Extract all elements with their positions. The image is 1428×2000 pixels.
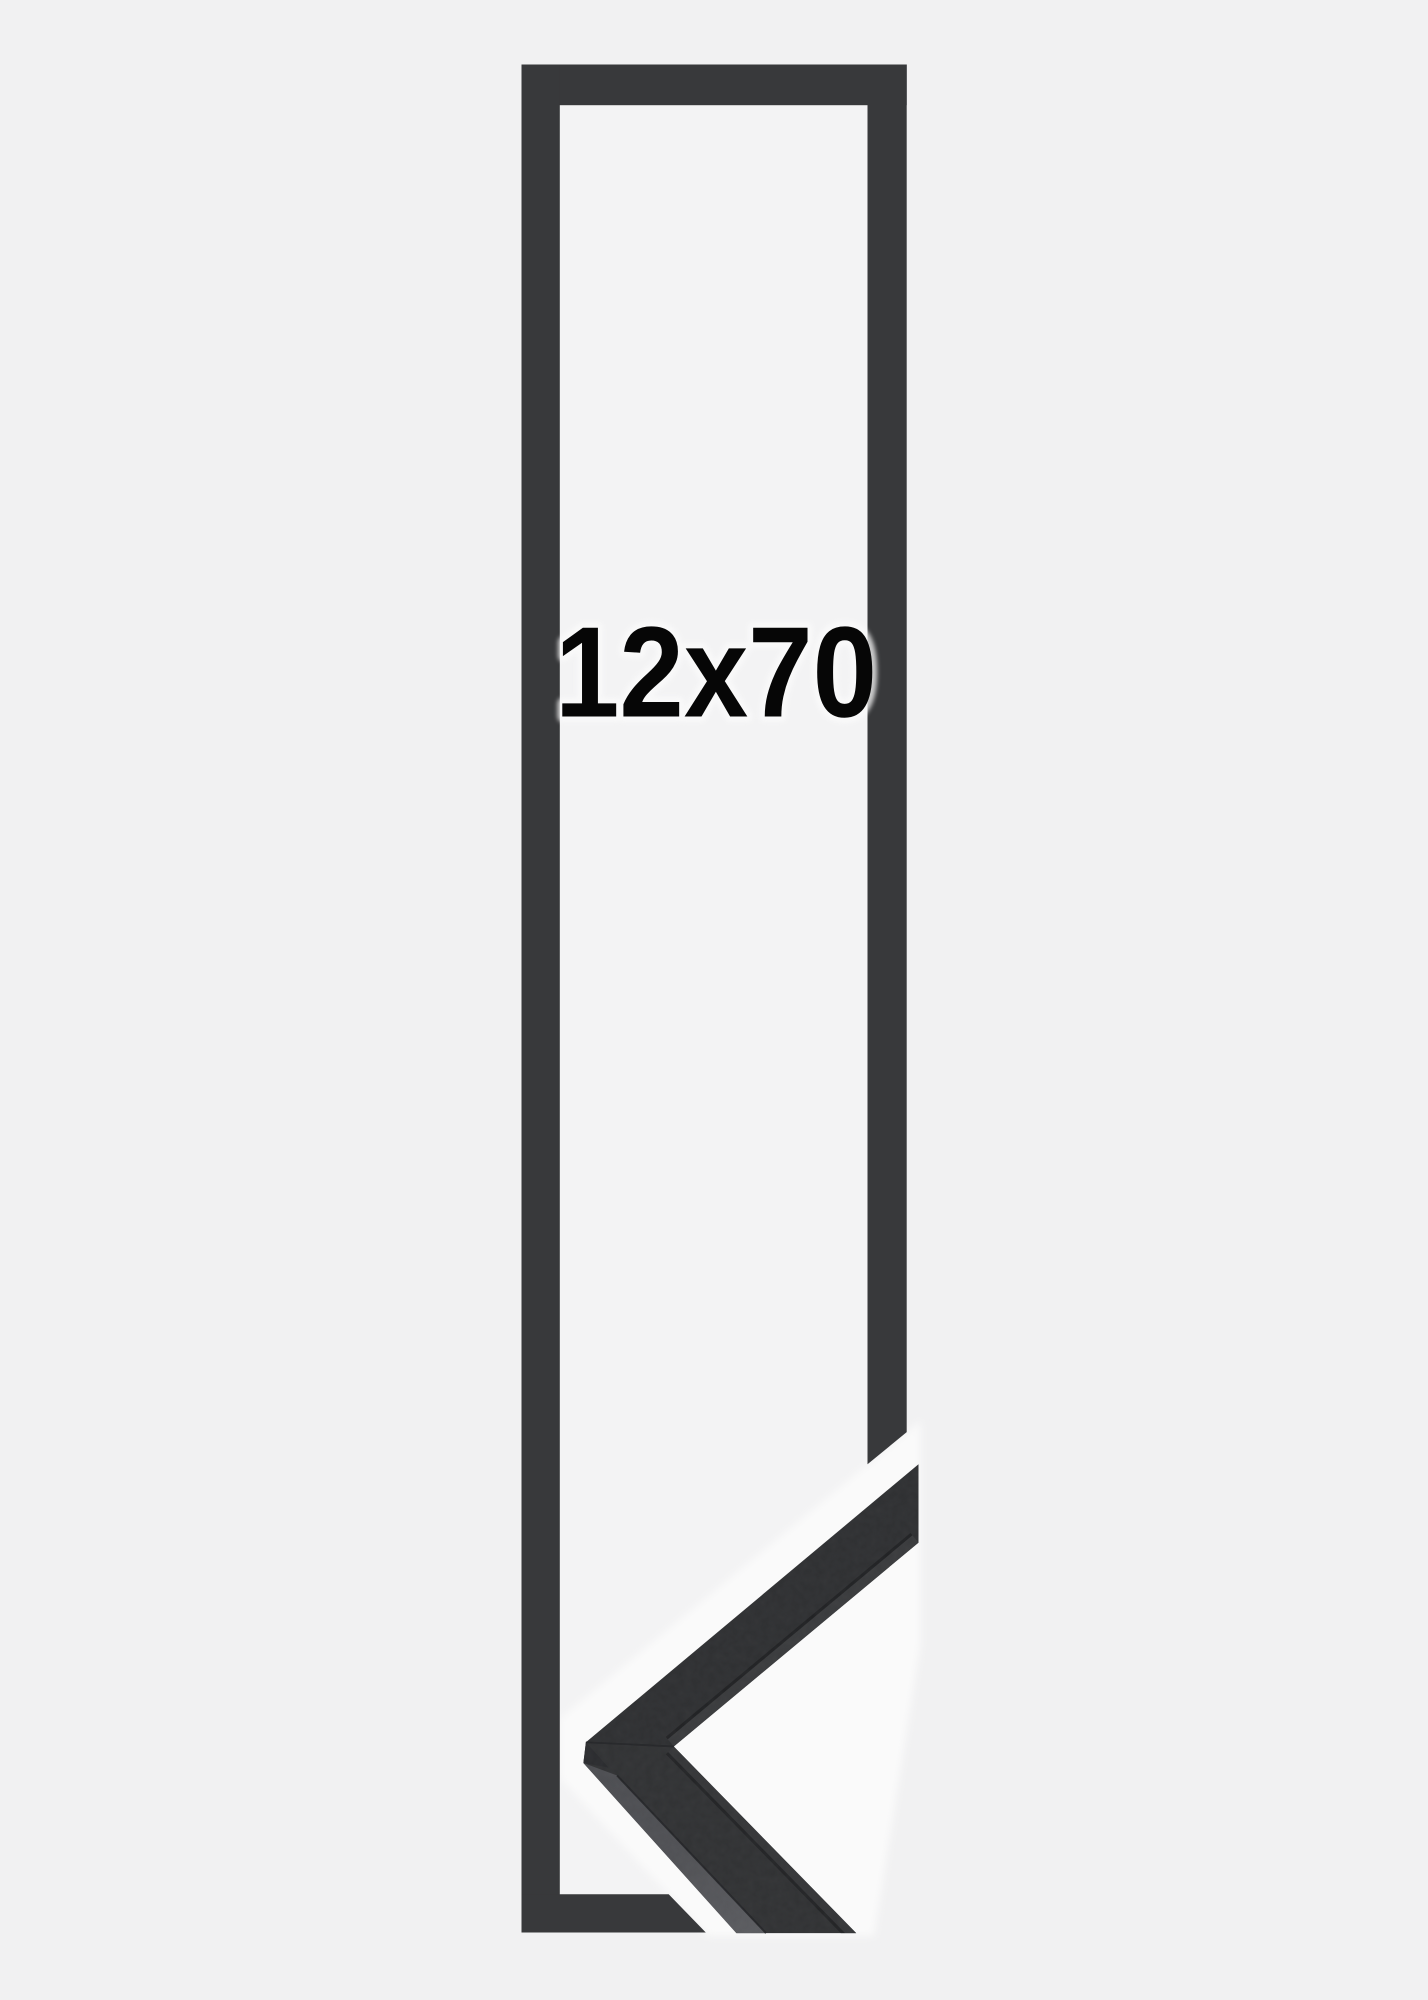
svg-text:12x70: 12x70 (555, 601, 877, 745)
